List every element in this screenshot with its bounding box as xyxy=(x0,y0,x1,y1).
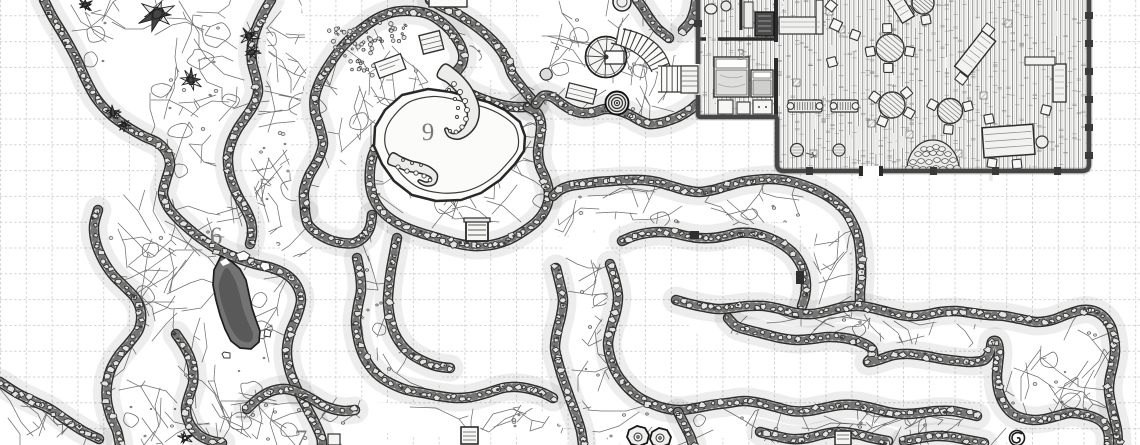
svg-text:9: 9 xyxy=(422,119,435,146)
svg-text:3: 3 xyxy=(737,45,746,64)
svg-text:6: 6 xyxy=(210,223,223,250)
svg-text:7: 7 xyxy=(295,426,308,445)
